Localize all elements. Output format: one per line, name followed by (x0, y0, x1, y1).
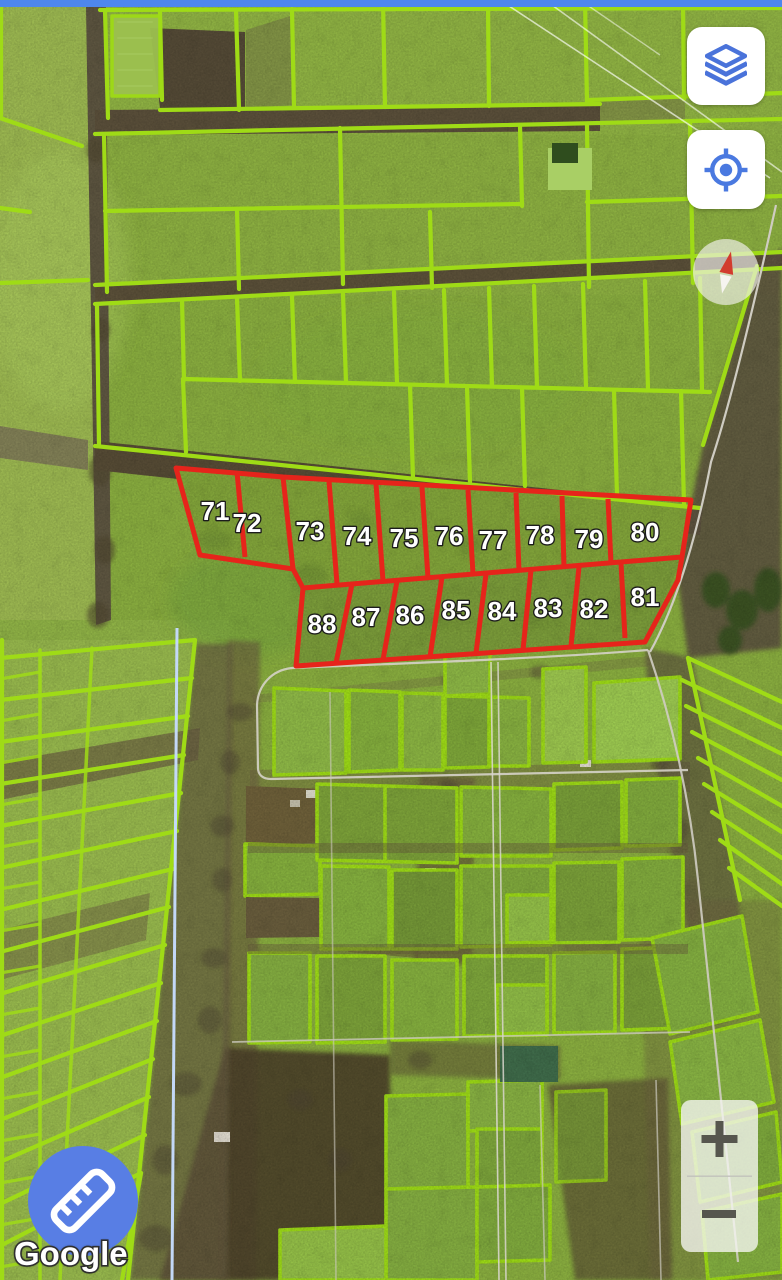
svg-text:71: 71 (201, 496, 230, 526)
svg-text:83: 83 (534, 593, 563, 623)
svg-text:86: 86 (396, 600, 425, 630)
svg-text:80: 80 (631, 517, 660, 547)
svg-text:77: 77 (479, 525, 508, 555)
svg-text:81: 81 (631, 582, 660, 612)
svg-text:87: 87 (352, 602, 381, 632)
svg-text:79: 79 (575, 524, 604, 554)
svg-text:73: 73 (296, 516, 325, 546)
svg-text:Google: Google (14, 1235, 128, 1272)
svg-text:82: 82 (580, 594, 609, 624)
svg-text:78: 78 (526, 520, 555, 550)
svg-text:85: 85 (442, 595, 471, 625)
svg-text:76: 76 (435, 521, 464, 551)
svg-text:75: 75 (390, 523, 419, 553)
svg-text:72: 72 (233, 508, 262, 538)
svg-text:74: 74 (343, 521, 372, 551)
svg-text:88: 88 (308, 609, 337, 639)
svg-text:84: 84 (488, 596, 517, 626)
